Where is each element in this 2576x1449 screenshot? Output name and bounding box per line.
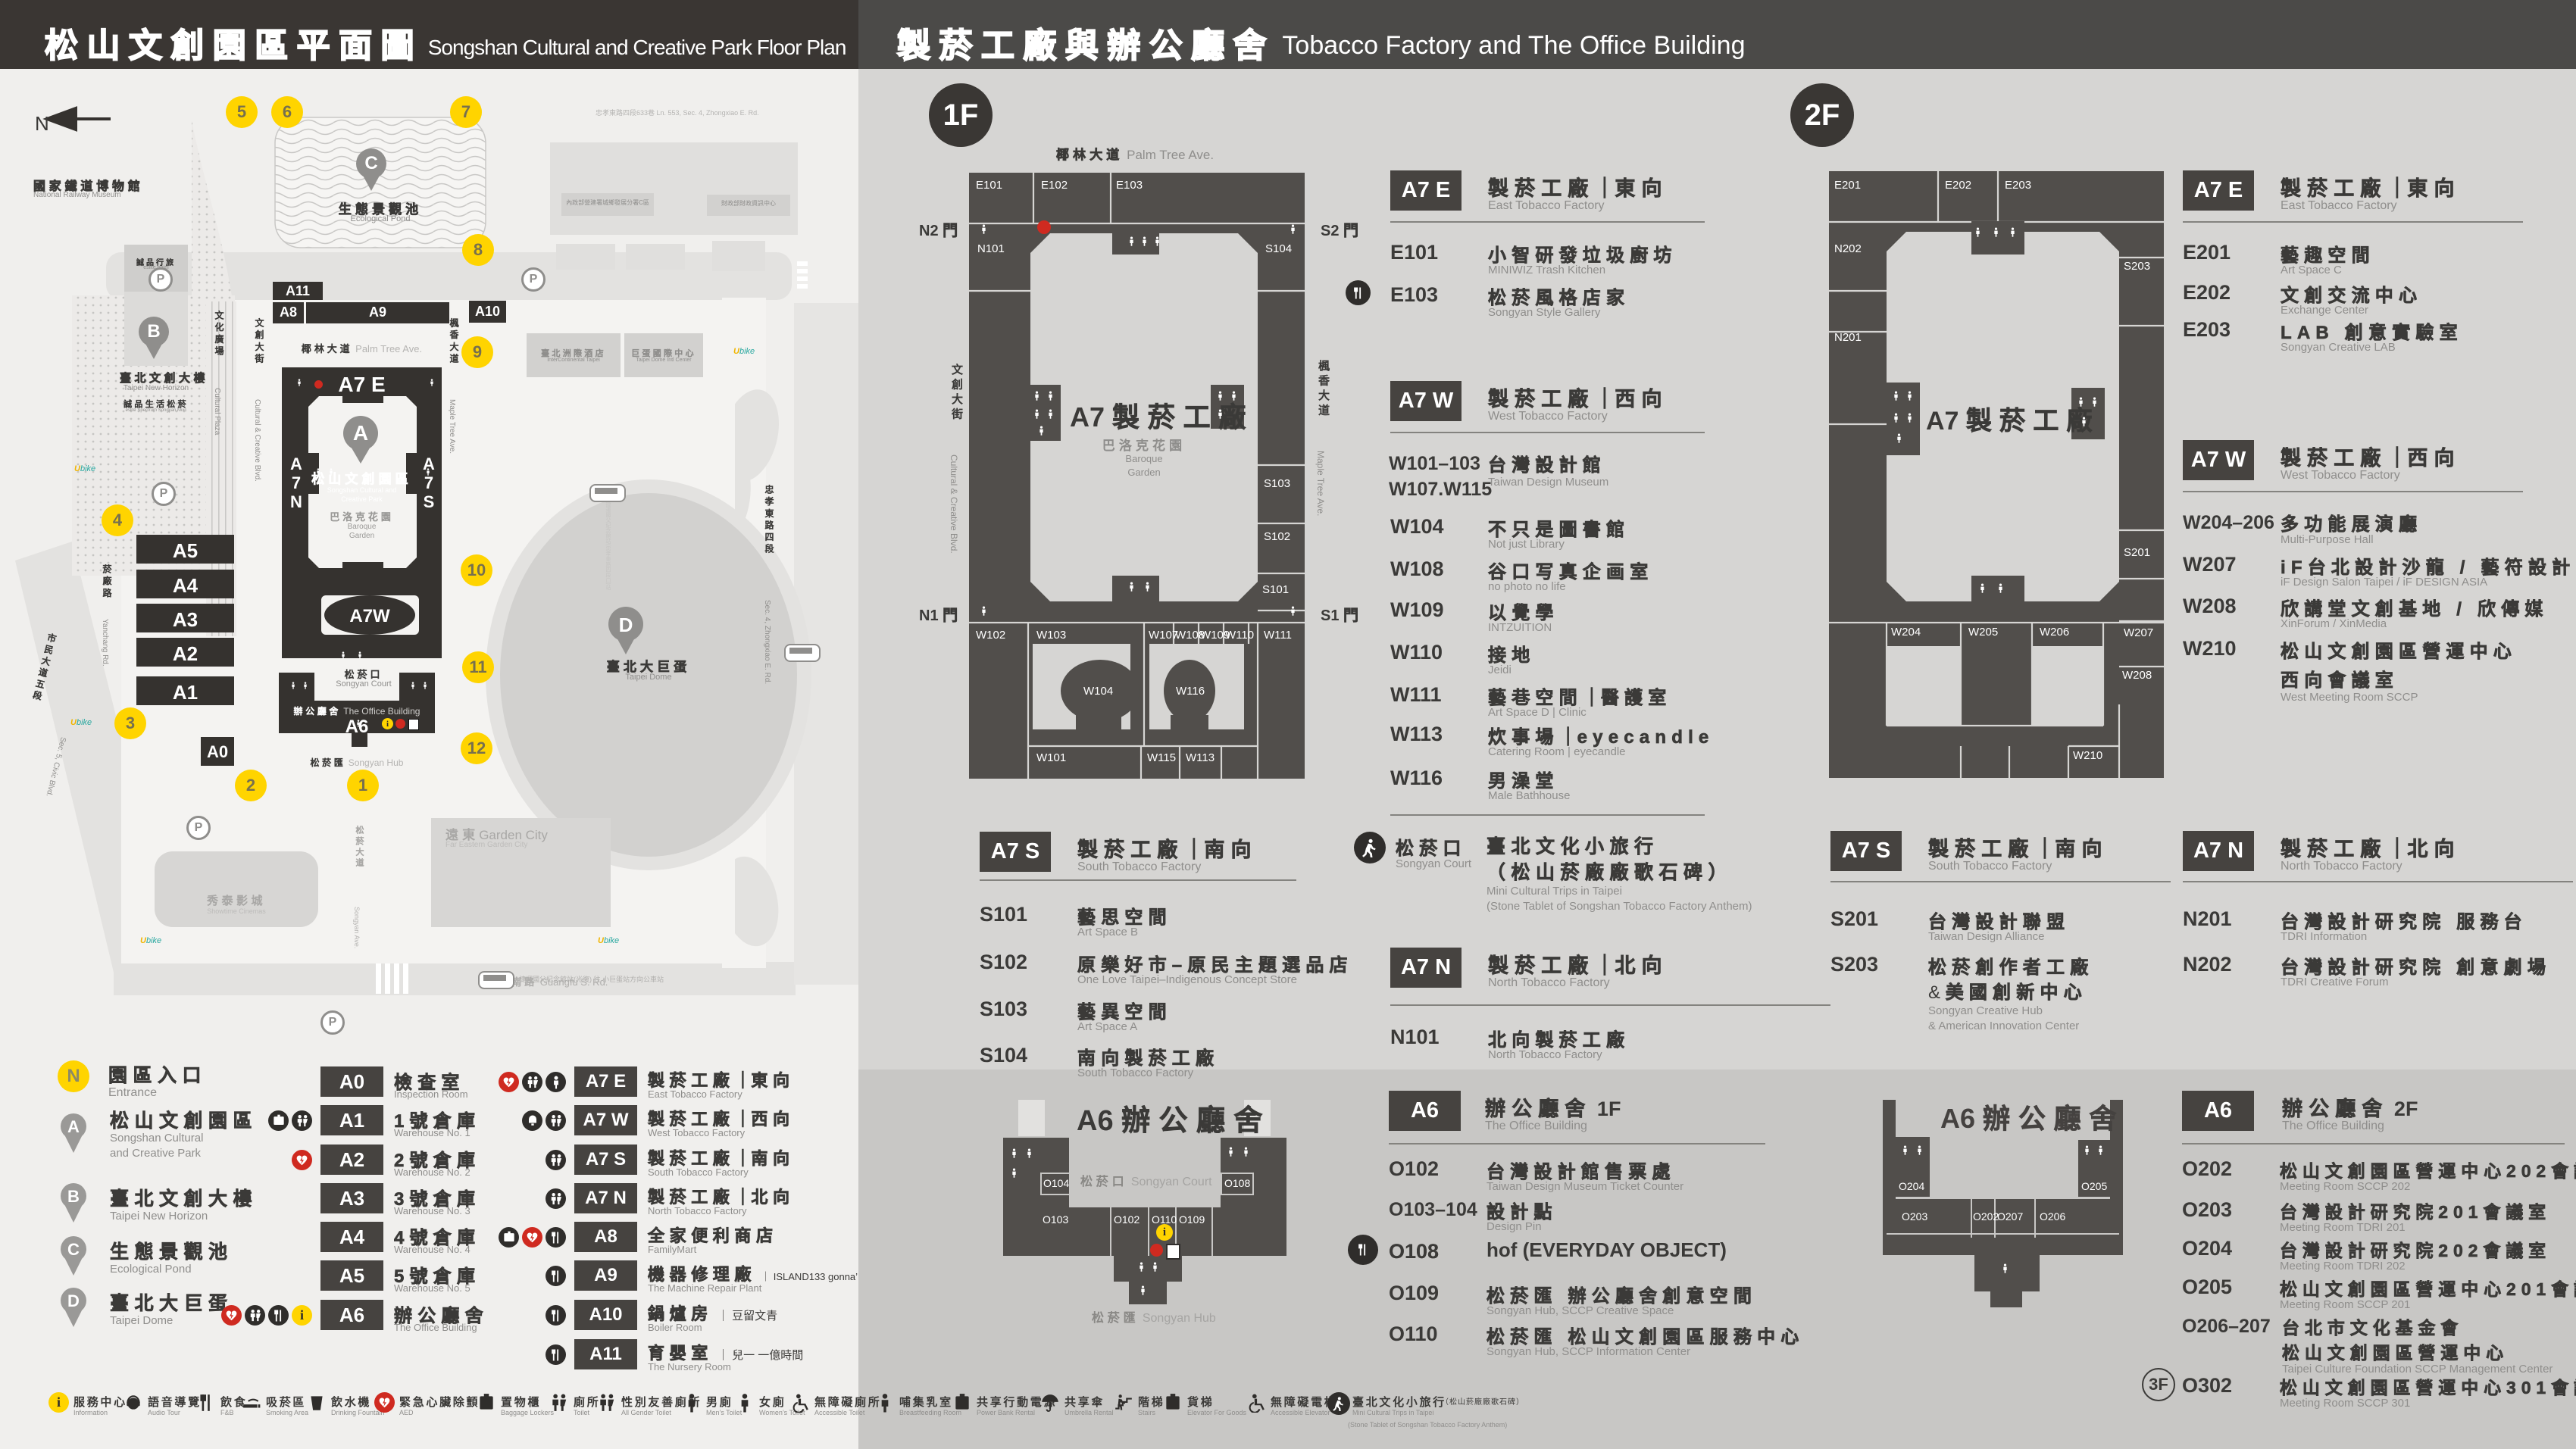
svg-text:A: A	[67, 1117, 80, 1136]
svg-text:B: B	[67, 1187, 80, 1206]
svg-text:D: D	[67, 1291, 80, 1310]
svg-text:C: C	[67, 1240, 80, 1259]
